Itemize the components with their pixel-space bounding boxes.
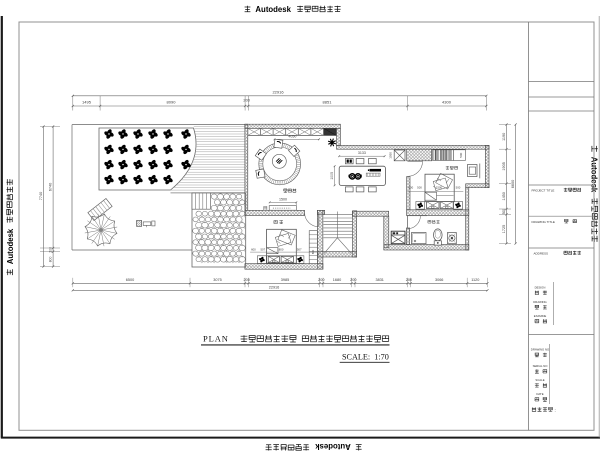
svg-text:SCALE: 1:70: SCALE: 1:70: [342, 353, 389, 362]
svg-text:3133: 3133: [358, 151, 366, 155]
svg-text:800: 800: [311, 249, 315, 254]
svg-text:1905: 1905: [502, 162, 506, 170]
svg-text:507: 507: [260, 247, 265, 251]
svg-text:3066: 3066: [435, 278, 443, 282]
svg-text:22916: 22916: [269, 286, 280, 290]
svg-text:SCALE: SCALE: [535, 378, 544, 382]
svg-text:PROJECT TITLE: PROJECT TITLE: [532, 189, 555, 193]
svg-text:600: 600: [408, 185, 413, 189]
svg-text:3075: 3075: [213, 278, 221, 282]
svg-text:1500: 1500: [436, 185, 443, 189]
svg-text:DRAWING: DRAWING: [533, 300, 546, 304]
svg-text:1500: 1500: [279, 198, 287, 202]
svg-text:EXAMINE: EXAMINE: [534, 314, 547, 318]
svg-text:DRAWING NO: DRAWING NO: [531, 348, 550, 352]
svg-text:6600: 6600: [511, 180, 515, 188]
svg-text:6500: 6500: [126, 278, 134, 282]
svg-text:DATE: DATE: [536, 392, 543, 396]
svg-text:Autodesk: Autodesk: [315, 442, 351, 451]
svg-text:1120: 1120: [471, 278, 479, 282]
svg-text:Autodesk: Autodesk: [6, 228, 15, 264]
svg-text:4050: 4050: [288, 135, 296, 139]
svg-text:8090: 8090: [167, 99, 177, 104]
svg-text:1680: 1680: [333, 278, 341, 282]
svg-text:8851: 8851: [323, 99, 333, 104]
svg-text:3985: 3985: [281, 278, 289, 282]
svg-text:DESIGN: DESIGN: [535, 286, 546, 290]
svg-text:3831: 3831: [375, 278, 383, 282]
svg-text:22916: 22916: [272, 90, 284, 95]
svg-text:ADDRESS: ADDRESS: [534, 252, 549, 256]
svg-text::: :: [555, 408, 556, 413]
svg-text:200: 200: [350, 278, 356, 282]
svg-text:PLAN: PLAN: [203, 334, 229, 344]
svg-text:500: 500: [417, 185, 422, 189]
svg-text:SERIAL NO: SERIAL NO: [533, 364, 549, 368]
svg-text:1190: 1190: [502, 133, 506, 141]
svg-text:800: 800: [48, 256, 52, 262]
svg-text:200: 200: [406, 278, 412, 282]
svg-text:200: 200: [48, 247, 52, 253]
svg-text:1450: 1450: [502, 192, 506, 200]
svg-text:600: 600: [251, 247, 256, 251]
svg-text:500: 500: [459, 152, 463, 157]
svg-text:300: 300: [502, 209, 506, 215]
svg-text:1050: 1050: [389, 152, 393, 159]
svg-text:1495: 1495: [82, 99, 92, 104]
svg-text:200: 200: [318, 278, 324, 282]
svg-text:1800: 1800: [277, 247, 284, 251]
svg-text:1725: 1725: [502, 225, 506, 233]
svg-text:1005: 1005: [330, 172, 334, 180]
svg-text:Autodesk: Autodesk: [255, 5, 291, 14]
svg-text:200: 200: [243, 98, 250, 103]
svg-text:6740: 6740: [48, 183, 52, 191]
svg-text:507: 507: [297, 247, 302, 251]
svg-text:DRAWING TITLE: DRAWING TITLE: [532, 220, 555, 224]
svg-text:7740: 7740: [39, 192, 43, 200]
svg-text:4300: 4300: [442, 99, 452, 104]
svg-text:200: 200: [244, 278, 250, 282]
svg-text:500: 500: [456, 185, 461, 189]
